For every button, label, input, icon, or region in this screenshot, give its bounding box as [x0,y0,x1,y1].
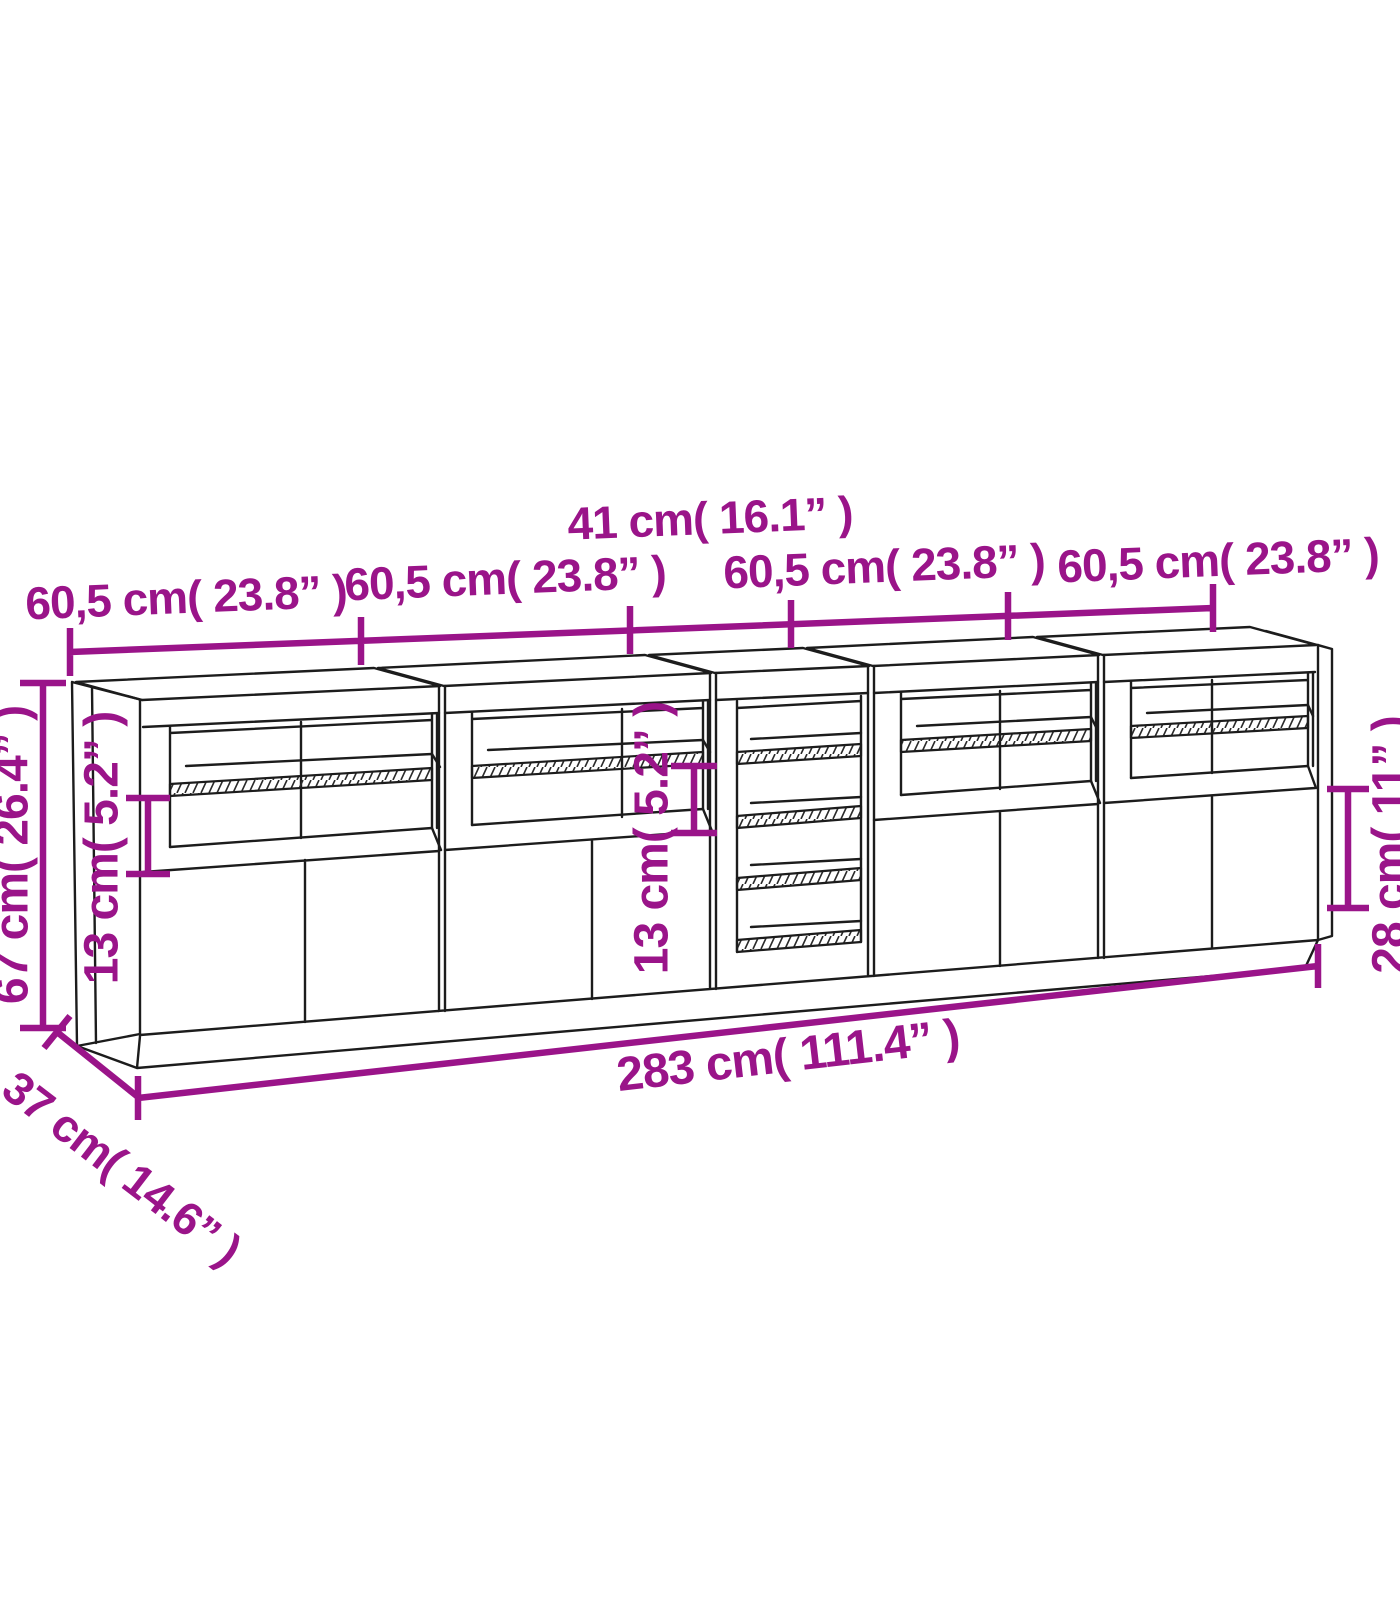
cabinet-right-side-panel [1266,631,1332,940]
depth-dimension-line [44,1016,138,1097]
furniture-dimension-diagram-page: 60,5 cm( 23.8” ) 60,5 cm( 23.8” ) 60,5 c… [0,0,1400,1600]
dimension-label-total-height: 67 cm( 26.4” ) [0,706,39,1004]
dimension-label-door-height: 28 cm( 11” ) [1364,716,1400,973]
furniture-dimension-diagram: 60,5 cm( 23.8” ) 60,5 cm( 23.8” ) 60,5 c… [0,0,1400,1600]
cabinet-drawing [72,627,1332,1068]
dimension-label-middle-shelf-spacing: 13 cm( 5.2” ) [626,702,679,974]
total-width-dimension-line [138,944,1318,1120]
dimension-label-left-shelf-spacing: 13 cm( 5.2” ) [76,712,129,984]
dimension-label-section-width-4: 60,5 cm( 23.8” ) [1056,528,1379,593]
dimension-label-middle-section-width: 41 cm( 16.1” ) [566,486,853,549]
cabinet-compartment-interiors [170,673,1313,952]
left-shelf-spacing-dimension-line [126,798,170,874]
dimension-label-section-width-3: 60,5 cm( 23.8” ) [722,534,1045,599]
dimension-label-section-width-2: 60,5 cm( 23.8” ) [343,546,666,611]
dimension-label-section-width-1: 60,5 cm( 23.8” ) [24,565,347,630]
dimension-labels: 60,5 cm( 23.8” ) 60,5 cm( 23.8” ) 60,5 c… [0,486,1400,1275]
cabinet-top-slab-edges [143,672,1315,727]
